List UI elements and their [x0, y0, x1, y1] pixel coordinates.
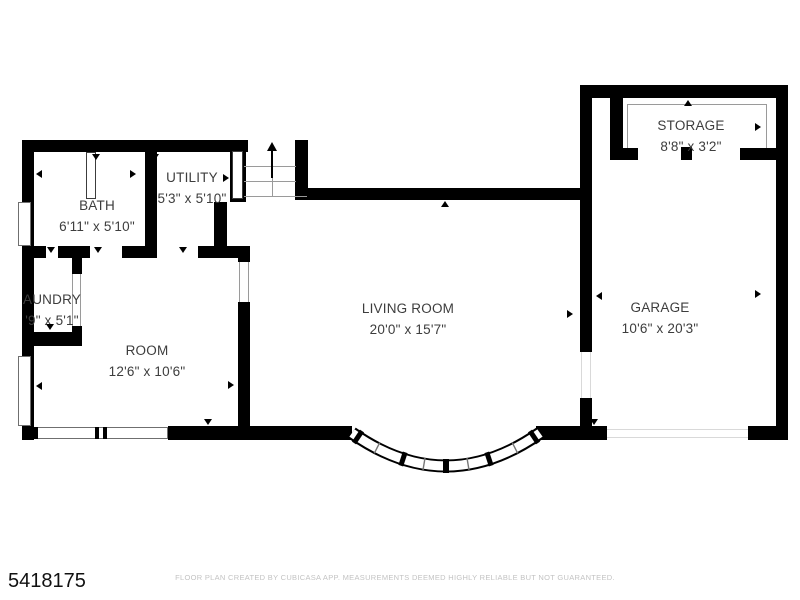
wall-bottom-left-solid	[168, 426, 352, 440]
wall-garage-right	[776, 85, 788, 440]
room-name: LIVING ROOM	[338, 298, 478, 319]
window-room-bottom	[34, 427, 168, 439]
wall-top-bath-utility	[22, 140, 248, 152]
storage-inner-line-top	[627, 104, 767, 105]
floor-plan: BATH 6'11" x 5'10" UTILITY 5'3" x 5'10" …	[0, 0, 800, 600]
room-opening-line-a	[239, 262, 240, 302]
wall-tick-icon	[755, 290, 761, 298]
room-label-room: ROOM 12'6" x 10'6"	[77, 340, 217, 382]
wall-tick-icon	[228, 381, 234, 389]
wall-tick-icon	[94, 247, 102, 253]
room-label-garage: GARAGE 10'6" x 20'3"	[590, 297, 730, 339]
wall-laundry-right-a	[72, 258, 82, 274]
storage-inner-line-right	[766, 104, 767, 148]
room-dimensions: 8'8" x 3'2"	[621, 136, 761, 157]
room-label-living-room: LIVING ROOM 20'0" x 15'7"	[338, 298, 478, 340]
room-name: ROOM	[77, 340, 217, 361]
door-leaf-utility	[232, 151, 243, 199]
wall-tick-icon	[596, 292, 602, 300]
wall-tick-icon	[755, 123, 761, 131]
disclaimer-text: FLOOR PLAN CREATED BY CUBICASA APP. MEAS…	[0, 573, 790, 582]
garage-door-opening-line-b	[590, 352, 591, 398]
wall-tick-icon	[567, 310, 573, 318]
bay-window	[330, 418, 560, 488]
wall-room-living-divider	[238, 302, 250, 428]
wall-tick-icon	[47, 247, 55, 253]
stairs-up-arrow-stem	[271, 150, 273, 178]
wall-tick-icon	[590, 419, 598, 425]
window-mullion	[34, 427, 38, 439]
window-mullion	[95, 427, 99, 439]
room-name: STORAGE	[621, 115, 761, 136]
wall-tick-icon	[223, 174, 229, 182]
room-dimensions: 20'0" x 15'7"	[338, 319, 478, 340]
wall-tick-icon	[36, 382, 42, 390]
wall-tick-icon	[615, 123, 621, 131]
window-mullion	[103, 427, 107, 439]
room-dimensions: 12'6" x 10'6"	[77, 361, 217, 382]
wall-tick-icon	[92, 154, 100, 160]
wall-room-divider-stub	[238, 246, 250, 262]
window-room-left	[18, 356, 31, 426]
wall-tick-icon	[179, 247, 187, 253]
wall-tick-icon	[151, 154, 159, 160]
wall-tick-icon	[36, 170, 42, 178]
wall-laundry-bottom	[22, 332, 82, 346]
garage-door-line-top	[607, 429, 748, 430]
wall-band-c	[122, 246, 157, 258]
wall-tick-icon	[204, 419, 212, 425]
wall-living-top	[295, 188, 592, 200]
stairs-up-arrow-icon	[267, 142, 277, 151]
window-bath-left	[18, 202, 31, 246]
wall-tick-icon	[130, 170, 136, 178]
wall-band-b	[58, 246, 90, 258]
wall-tick-icon	[46, 324, 54, 330]
room-name: AUNDRY	[0, 289, 122, 310]
room-label-storage: STORAGE 8'8" x 3'2"	[621, 115, 761, 157]
wall-band-a	[22, 246, 46, 258]
room-label-laundry: AUNDRY '9" x 5'1"	[0, 289, 122, 331]
wall-tick-icon	[684, 100, 692, 106]
room-opening-line-b	[248, 262, 249, 302]
room-dimensions: 10'6" x 20'3"	[590, 318, 730, 339]
garage-door-opening-line-a	[581, 352, 582, 398]
garage-door-line-bottom	[607, 437, 748, 438]
room-name: GARAGE	[590, 297, 730, 318]
wall-stairs-right	[295, 140, 308, 192]
room-dimensions: '9" x 5'1"	[0, 310, 122, 331]
wall-garage-top	[580, 85, 788, 98]
room-dimensions: 6'11" x 5'10"	[27, 216, 167, 237]
wall-tick-icon	[441, 201, 449, 207]
